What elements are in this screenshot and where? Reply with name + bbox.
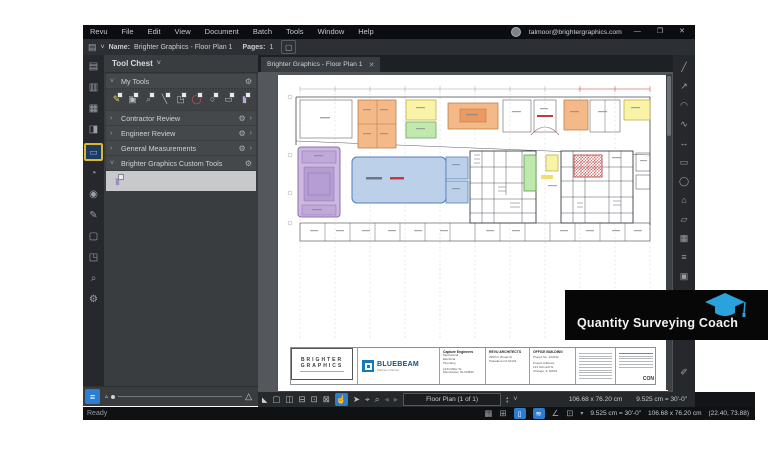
column-title: REVU ARCHITECTS — [489, 350, 527, 354]
column-line: Pasadena CA 91101 — [489, 360, 527, 364]
chevron-right-icon: › — [110, 115, 117, 122]
architect-info-column: REVU ARCHITECTS 2950 N. Broad St Pasaden… — [485, 348, 529, 384]
expand-icon[interactable]: › — [250, 145, 252, 152]
snap-toggle-icon[interactable]: ⊞ — [499, 408, 506, 419]
select-tool-icon[interactable]: ➤ — [353, 393, 360, 406]
cursor-coordinates: (22.40, 73.88) — [709, 410, 749, 417]
section-my-tools[interactable]: ˅ My Tools ⚙ — [106, 74, 256, 88]
resize-grip-icon[interactable]: ◣ — [262, 396, 267, 404]
signatures-icon[interactable]: ✎ — [85, 208, 102, 224]
brand-line-2: GRAPHICS — [301, 363, 343, 369]
menu-revu[interactable]: Revu — [83, 25, 115, 39]
tool-chest-title: Tool Chest — [112, 59, 153, 68]
project-info-column: OFFICE BUILDING Project No. 323232 Proje… — [529, 348, 575, 384]
polygon-measure-icon[interactable]: ⌂ — [675, 194, 693, 207]
units-dropdown-icon[interactable]: ▾ — [580, 410, 583, 417]
section-contractor-review[interactable]: › Contractor Review ⚙ › — [106, 111, 256, 125]
badge-label: Quantity Surveying Coach — [577, 316, 738, 330]
sets-icon[interactable]: ◨ — [85, 122, 102, 138]
ellipse-tool[interactable]: ◯ — [190, 92, 203, 107]
gear-icon[interactable]: ⚙ — [245, 77, 252, 86]
next-page-icon[interactable]: ▸ — [394, 393, 398, 406]
section-label: Engineer Review — [121, 129, 175, 138]
my-tools-items: ✎ ▣ ⌕ ╲ ◳ ◯ ○ ▭ ▮ — [106, 89, 256, 110]
fit-page-icon[interactable]: ⊡ — [311, 393, 318, 406]
sync-icon[interactable]: ≋ — [533, 408, 545, 419]
section-label: General Measurements — [121, 144, 196, 153]
gear-icon[interactable]: ⚙ — [238, 114, 245, 123]
close-button[interactable]: ✕ — [675, 25, 689, 39]
arc-measure-icon[interactable]: ◠ — [675, 99, 693, 112]
angle-snap-icon[interactable]: ∠ — [552, 408, 560, 419]
navigation-bar: ◣ ▢ ◫ ⊟ ⊡ ⊠ ☝ ➤ ⌖ ⌕ ◂ ▸ Floor Plan (1 of… — [258, 392, 695, 407]
shapes-icon[interactable]: ▢ — [85, 229, 102, 245]
chevron-down-icon: ˅ — [110, 78, 117, 85]
title-block: BRIGHTER GRAPHICS BLUEBEAM Platinum Part… — [290, 347, 656, 385]
column-title: OFFICE BUILDING — [533, 350, 573, 354]
engineer-info-column: Capture Engineers Mechanical Electrical … — [439, 348, 485, 384]
panel-bottom-bar: ≡ ▵ △ — [83, 386, 258, 406]
column-line: Plumbing — [443, 362, 483, 366]
units-icon[interactable]: ⊡ — [566, 408, 573, 419]
single-page-icon[interactable]: ▢ — [272, 393, 280, 406]
menu-batch[interactable]: Batch — [246, 25, 279, 39]
grid-measure-icon[interactable]: ▦ — [675, 232, 693, 245]
area-measure-icon[interactable]: ▭ — [675, 156, 693, 169]
pages-label: Pages: — [242, 44, 265, 51]
tool-chest-header[interactable]: Tool Chest ˅ — [104, 55, 258, 73]
callout-tool[interactable]: ▣ — [126, 92, 139, 107]
menu-window[interactable]: Window — [311, 25, 352, 39]
rectangle-tool[interactable]: ▭ — [222, 92, 235, 107]
bluebeam-logo: BLUEBEAM Platinum Partner — [357, 348, 437, 384]
section-general-measurements[interactable]: › General Measurements ⚙ › — [106, 141, 256, 155]
cutout-measure-icon[interactable]: ▱ — [675, 213, 693, 226]
highlight-tool[interactable]: ✎ — [110, 92, 123, 107]
bookmarks-icon[interactable]: ▥ — [85, 80, 102, 96]
slider-max-icon: △ — [245, 391, 252, 402]
section-label: Contractor Review — [121, 114, 180, 123]
status-size: 106.68 x 76.20 cm — [648, 410, 701, 417]
column-line: Chicago, IL 60601 — [533, 370, 573, 374]
menu-edit[interactable]: Edit — [141, 25, 168, 39]
chevron-down-icon: ˅ — [110, 160, 117, 167]
bluebeam-wordmark: BLUEBEAM — [377, 361, 419, 368]
chevron-right-icon: › — [110, 145, 117, 152]
label-tool-icon[interactable]: ▣ — [675, 270, 693, 283]
list-view-button[interactable]: ≡ — [85, 389, 100, 404]
circle-tool[interactable]: ○ — [206, 92, 219, 107]
tool-chest-panel: Tool Chest ˅ ˅ My Tools ⚙ ✎ ▣ ⌕ ╲ ◳ ◯ ○ … — [104, 55, 258, 386]
section-label: Brighter Graphics Custom Tools — [121, 159, 222, 168]
split-view-icon[interactable]: ⊟ — [298, 393, 305, 406]
markup-mode-icon[interactable]: ▯ — [514, 408, 526, 419]
menu-tools[interactable]: Tools — [279, 25, 311, 39]
file-bar: ▤ ˅ Name: Brighter Graphics - Floor Plan… — [83, 39, 695, 55]
slider-knob[interactable] — [111, 395, 115, 399]
file-name: Brighter Graphics - Floor Plan 1 — [134, 44, 232, 51]
column-line: Project No. 323232 — [533, 356, 573, 360]
markup-list-icon[interactable]: ≡ — [675, 251, 693, 264]
document-scale: 9.525 cm = 30'-0" — [636, 396, 687, 403]
quantity-surveying-coach-badge: Quantity Surveying Coach — [565, 290, 768, 340]
status-scale: 9.525 cm = 30'-0" — [590, 410, 641, 417]
previous-page-icon[interactable]: ◂ — [385, 393, 389, 406]
file-dropdown-icon[interactable]: ˅ — [101, 44, 105, 51]
icon-size-slider[interactable]: ▵ △ — [105, 391, 252, 402]
thumbnails-icon[interactable]: ▦ — [85, 101, 102, 117]
brighter-graphics-logo: BRIGHTER GRAPHICS — [291, 348, 353, 380]
document-size: 106.68 x 76.20 cm — [569, 396, 622, 403]
snapshot-tool-icon[interactable]: ✐ — [675, 366, 693, 379]
line-tool[interactable]: ╲ — [158, 92, 171, 107]
account-email[interactable]: talmoor@brightergraphics.com — [529, 29, 622, 36]
document-tab-bar: Brighter Graphics - Floor Plan 1 ✕ — [258, 55, 673, 72]
snapshot-icon[interactable]: ⊠ — [323, 393, 330, 406]
leader-tool[interactable]: ◳ — [174, 92, 187, 107]
menu-file[interactable]: File — [115, 25, 141, 39]
section-engineer-review[interactable]: › Engineer Review ⚙ › — [106, 126, 256, 140]
page-setup-button[interactable]: ▢ — [281, 40, 296, 54]
layers-icon[interactable]: ◔ — [85, 166, 102, 182]
settings-icon[interactable]: ⚙ — [85, 292, 102, 308]
pages-value: 1 — [269, 44, 273, 51]
capture-icon[interactable]: ◳ — [85, 250, 102, 266]
file-icon[interactable]: ▤ — [88, 42, 97, 53]
scrollbar-thumb[interactable] — [667, 76, 671, 136]
gear-icon[interactable]: ⚙ — [238, 144, 245, 153]
ellipse-area-measure-icon[interactable]: ◯ — [675, 175, 693, 188]
minimize-button[interactable]: — — [630, 25, 645, 39]
zoom-tool-icon[interactable]: ⌕ — [375, 393, 380, 406]
revu-logo-icon — [511, 27, 521, 37]
custom-tools-items: ▮ — [106, 171, 256, 191]
menu-help[interactable]: Help — [351, 25, 380, 39]
screenshot-root: Revu File Edit View Document Batch Tools… — [0, 0, 768, 461]
tool-chest-icon[interactable]: ▭ — [84, 143, 103, 161]
left-panel-toolbar: ▤ ▥ ▦ ◨ ▭ ◔ ◉ ✎ ▢ ◳ ⌕ ⚙ — [83, 55, 104, 392]
measurement-toolbar: ╱ ↗ ◠ ∿ ↔ ▭ ◯ ⌂ ▱ ▦ ≡ ▣ ✎ ✐ — [673, 55, 695, 392]
menu-bar: Revu File Edit View Document Batch Tools… — [83, 25, 695, 39]
menu-view[interactable]: View — [168, 25, 198, 39]
stamps-icon[interactable]: ◉ — [85, 187, 102, 203]
file-access-icon[interactable]: ▤ — [85, 59, 102, 75]
notes-block — [575, 348, 615, 384]
zoom-region-tool[interactable]: ⌕ — [142, 92, 155, 107]
gear-icon[interactable]: ⚙ — [238, 129, 245, 138]
section-label: My Tools — [121, 77, 149, 86]
page-dropdown-icon[interactable]: ˅ — [513, 393, 517, 406]
tab-title: Brighter Graphics - Floor Plan 1 — [267, 61, 363, 68]
spin-down-icon[interactable]: ▾ — [506, 400, 508, 404]
bluebeam-subtitle: Platinum Partner — [377, 368, 419, 372]
floor-plan-page[interactable]: BRIGHTER GRAPHICS BLUEBEAM Platinum Part… — [278, 75, 668, 391]
partial-text: CON — [643, 376, 654, 382]
ready-status: Ready — [87, 410, 107, 417]
menu-document[interactable]: Document — [198, 25, 246, 39]
tab-close-icon[interactable]: ✕ — [369, 61, 375, 69]
bluebeam-icon — [362, 360, 374, 372]
length-measure-icon[interactable]: ╱ — [675, 61, 693, 74]
expand-icon[interactable]: › — [250, 115, 252, 122]
revision-block: CON — [615, 348, 656, 384]
diameter-measure-icon[interactable]: ↔ — [675, 137, 693, 150]
column-line: Manchester, NH 03830 — [443, 371, 483, 375]
restore-button[interactable]: ❐ — [653, 25, 667, 39]
curve-measure-icon[interactable]: ∿ — [675, 118, 693, 131]
polylength-measure-icon[interactable]: ↗ — [675, 80, 693, 93]
text-select-icon[interactable]: ⌖ — [365, 393, 370, 406]
vertical-scrollbar[interactable] — [666, 74, 672, 390]
pan-tool-icon[interactable]: ☝ — [335, 393, 348, 406]
chevron-down-icon: ˅ — [157, 60, 161, 67]
custom-purple-tool[interactable]: ▮ — [111, 174, 124, 189]
page-selector[interactable]: Floor Plan (1 of 1) — [403, 393, 501, 406]
document-tab[interactable]: Brighter Graphics - Floor Plan 1 ✕ — [261, 57, 380, 72]
expand-icon[interactable]: › — [250, 130, 252, 137]
search-icon[interactable]: ⌕ — [85, 271, 102, 287]
section-brighter-graphics-custom-tools[interactable]: ˅ Brighter Graphics Custom Tools ⚙ — [106, 156, 256, 170]
slider-track[interactable] — [118, 396, 242, 397]
slider-min-icon: ▵ — [105, 393, 108, 400]
grid-toggle-icon[interactable]: ▦ — [484, 408, 492, 419]
chevron-right-icon: › — [110, 130, 117, 137]
status-bar: Ready ▦ ⊞ ▯ ≋ ∠ ⊡ ▾ 9.525 cm = 30'-0" 10… — [83, 407, 755, 420]
gear-icon[interactable]: ⚙ — [245, 159, 252, 168]
name-label: Name: — [109, 44, 130, 51]
box-tool[interactable]: ▮ — [238, 92, 251, 107]
side-by-side-icon[interactable]: ◫ — [285, 393, 293, 406]
page-spinner[interactable]: ▴ ▾ — [506, 396, 508, 404]
